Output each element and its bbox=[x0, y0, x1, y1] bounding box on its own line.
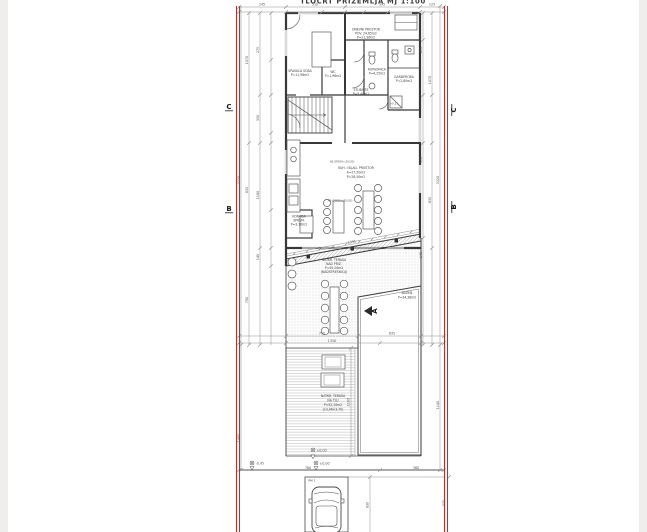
dim-label: 970 bbox=[419, 157, 423, 163]
sink-icon bbox=[369, 83, 375, 89]
terrace-upper-label: (NADSTREŠNICA) bbox=[321, 269, 348, 274]
terrace-lower-label: NATKR. TERASA bbox=[321, 394, 346, 398]
room-label-bedroom: P=11,96m2 bbox=[291, 73, 309, 77]
car-mirror bbox=[341, 499, 344, 503]
section-letter-b-right: B bbox=[450, 204, 458, 209]
dim-label: 275 bbox=[256, 47, 260, 53]
level-value: -0,45 bbox=[256, 462, 265, 466]
beam-label: AB GREDA (20/30) bbox=[328, 199, 353, 203]
room-label-dining: KUH. I BLAG. PROSTOR bbox=[338, 166, 374, 170]
level-value: ±0,00 bbox=[317, 449, 327, 453]
level-note: +0,15 bbox=[390, 102, 399, 106]
dim-label: 510 bbox=[312, 3, 318, 7]
room-label-stairs: P=5,40m2 bbox=[353, 92, 369, 96]
section-letter-c-left: C bbox=[226, 103, 231, 111]
dim-label: 125 bbox=[429, 3, 435, 7]
page-title: TLOCRT PRIZEMLJA MJ 1:100 bbox=[300, 0, 426, 6]
dim-label: 1180 bbox=[256, 191, 260, 199]
table bbox=[312, 32, 331, 67]
section-letter-a: A bbox=[371, 308, 379, 314]
dim-label: 245 bbox=[259, 3, 265, 7]
dim-label: 835 bbox=[245, 187, 249, 193]
dim-label: 760 bbox=[305, 466, 311, 470]
dim-label: 350 bbox=[256, 115, 260, 121]
room-label-living: P=21,36m2 bbox=[357, 36, 375, 40]
room-label-dining: P=28,50m2 bbox=[347, 175, 365, 179]
dim-label: 360 bbox=[413, 466, 419, 470]
room-label-wardrobe: P=2,80m2 bbox=[396, 79, 412, 83]
canopy-column bbox=[307, 255, 311, 259]
toilet-icon bbox=[392, 54, 398, 62]
page-title-text: TLOCRT PRIZEMLJA MJ 1:100 bbox=[300, 0, 426, 6]
dim-label: 140 bbox=[256, 254, 260, 260]
terrace-lower-label: NA TLU bbox=[327, 399, 338, 403]
room-label-wc: P=1,96m2 bbox=[325, 74, 341, 78]
car-mirror bbox=[309, 499, 312, 503]
parking-space: PM 1 bbox=[305, 477, 348, 532]
stove-icon bbox=[289, 184, 298, 193]
sink-icon bbox=[291, 147, 297, 153]
parking-label: PM 1 bbox=[308, 479, 315, 483]
dim-label: 830 bbox=[366, 502, 370, 508]
dim-label: 635 bbox=[389, 332, 395, 336]
dim-label: 790 bbox=[245, 297, 249, 303]
pool-label: BAZEN bbox=[402, 291, 413, 295]
pool-label: P=34,38m2 bbox=[398, 296, 416, 300]
dim-label: 275 bbox=[419, 47, 423, 53]
toilet-tank bbox=[392, 50, 398, 54]
terrace-lower-label: (13,96×3,70) bbox=[323, 408, 344, 412]
room-label-storage: P=3,10m2 bbox=[291, 223, 307, 227]
sink-icon bbox=[291, 156, 297, 162]
dim-label: 1140 bbox=[436, 401, 440, 409]
dim-label: 750 bbox=[319, 332, 325, 336]
canopy-column bbox=[395, 239, 399, 243]
dim-label: 1100 bbox=[347, 398, 351, 406]
staircase bbox=[288, 97, 332, 133]
furniture-dining bbox=[323, 184, 381, 234]
toilet-icon bbox=[369, 56, 375, 64]
room-label-bath: P=4,25m2 bbox=[369, 72, 385, 76]
appliance-icon bbox=[289, 196, 298, 205]
sink-icon bbox=[408, 48, 411, 51]
car-top-view-icon bbox=[309, 487, 344, 532]
terrace-lower-label: P=52,10m2 bbox=[324, 403, 342, 407]
dim-label: 1350 bbox=[328, 339, 336, 343]
dim-label: 395 bbox=[379, 3, 385, 7]
screenshot-stage: TLOCRT PRIZEMLJA MJ 1:100 BAZEN P=34,38m… bbox=[0, 0, 647, 532]
planter-icon bbox=[288, 282, 296, 290]
section-letter-c-right: C bbox=[450, 107, 458, 112]
room-label-dining: A=27,50m2 bbox=[347, 171, 366, 175]
planter-icon bbox=[288, 270, 296, 278]
toilet-tank bbox=[369, 52, 375, 56]
dim-label: 140 bbox=[419, 252, 423, 258]
floor-plan-canvas: TLOCRT PRIZEMLJA MJ 1:100 BAZEN P=34,38m… bbox=[0, 0, 647, 532]
dim-label: 835 bbox=[428, 197, 432, 203]
dim-label: 3320 bbox=[436, 176, 440, 184]
dim-label: 1070 bbox=[245, 56, 249, 64]
beam-label: AB GREDA (20/30) bbox=[330, 160, 355, 164]
level-value: ±0,00 bbox=[320, 462, 330, 466]
dim-label: 1070 bbox=[428, 76, 432, 84]
section-letter-b-left: B bbox=[226, 205, 231, 213]
planter-icon bbox=[288, 258, 296, 266]
